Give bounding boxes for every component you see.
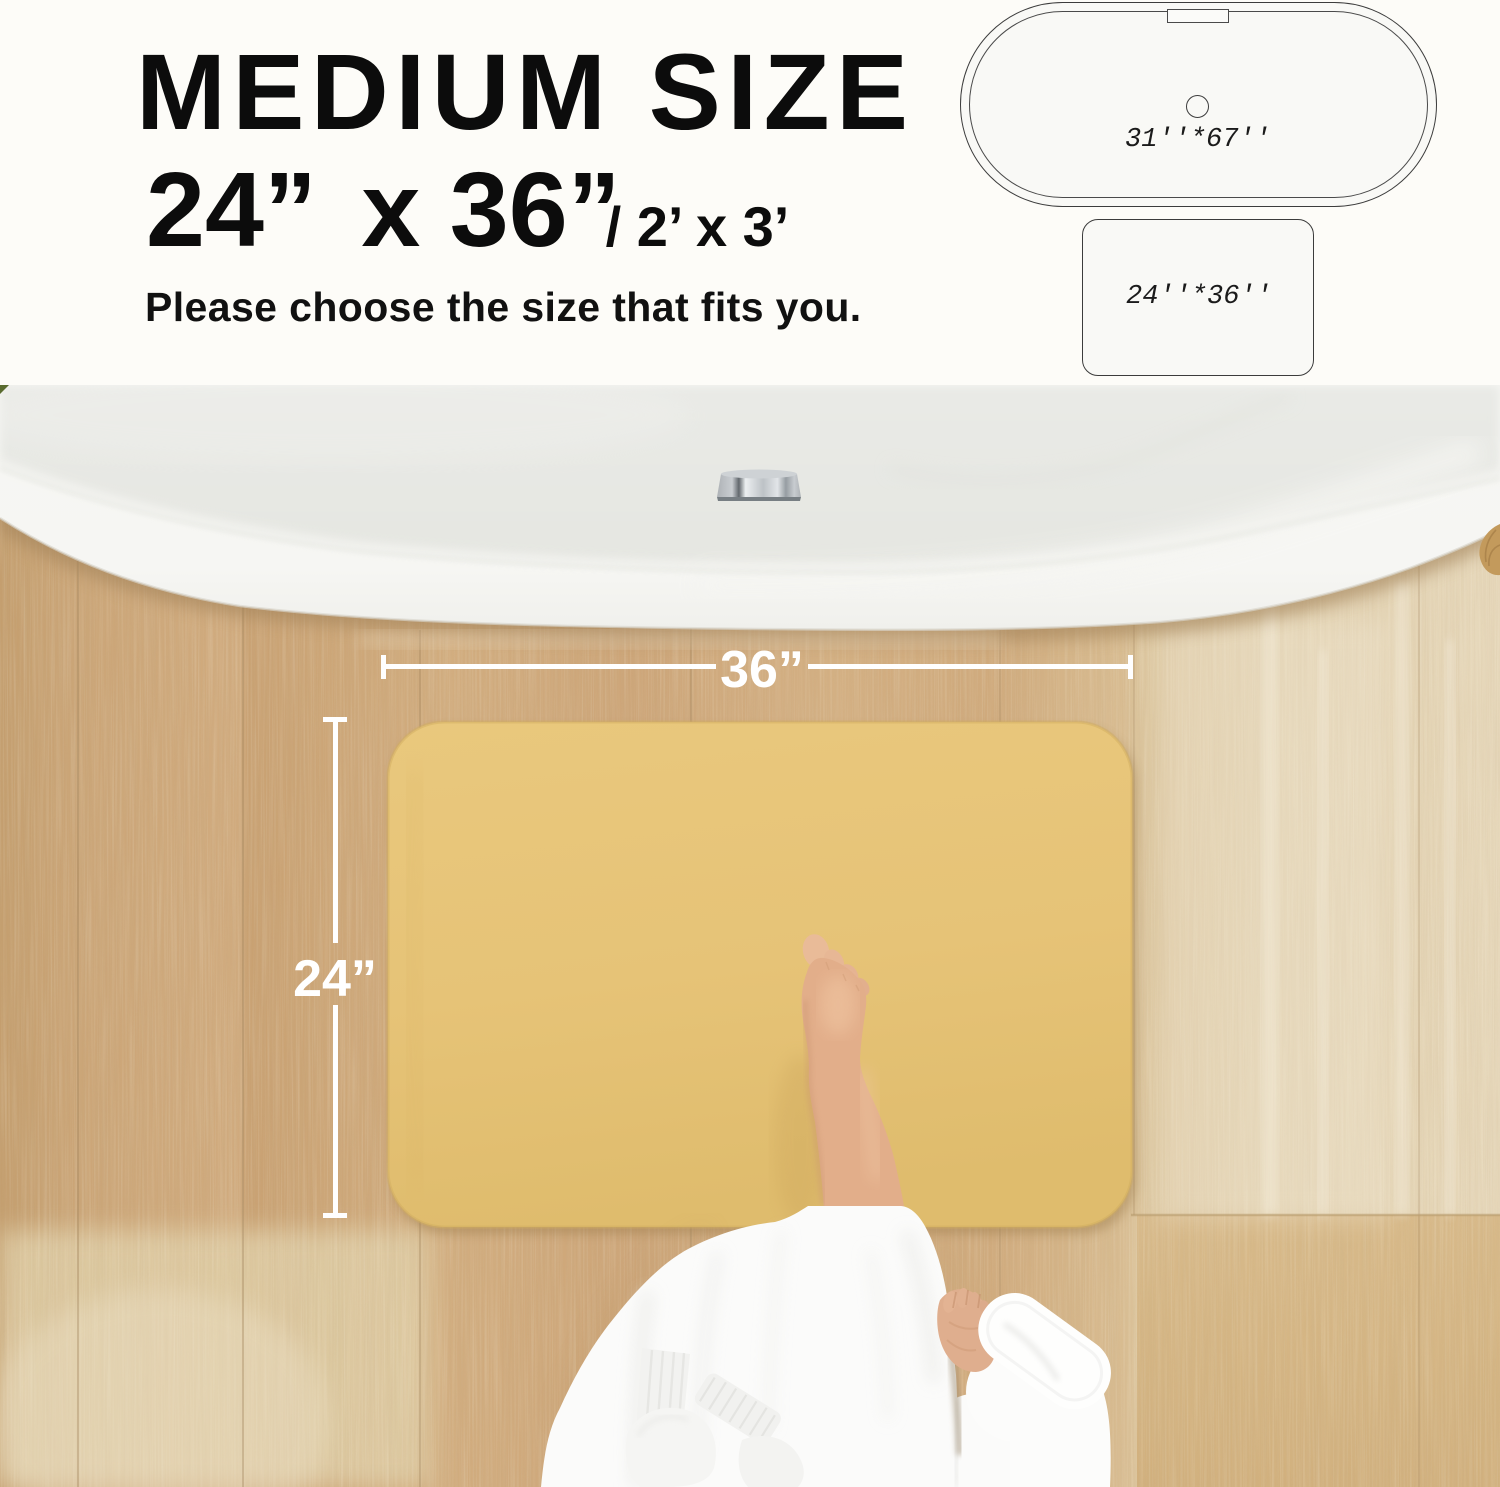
svg-text:36”: 36” (720, 641, 804, 699)
svg-text:24”: 24” (293, 950, 377, 1008)
